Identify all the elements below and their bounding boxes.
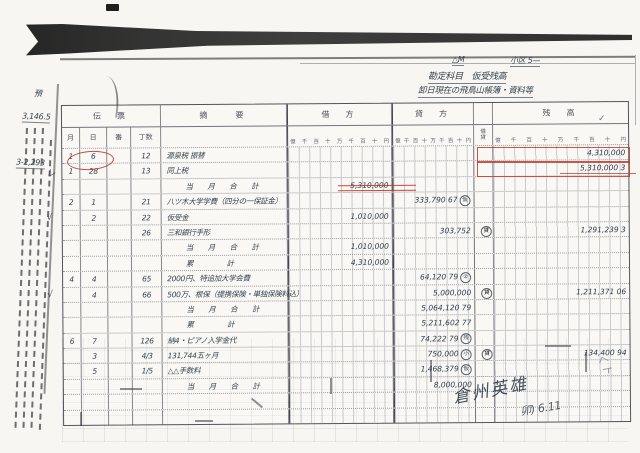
cell-dc-indicator (475, 331, 494, 346)
date-text: 66 (132, 287, 161, 302)
description-text: 源泉税 振替 (161, 147, 286, 163)
cell-balance (494, 207, 629, 222)
cell-credit: 303,752 (393, 223, 475, 238)
cell-date: 1 (81, 195, 108, 210)
cell-date (63, 210, 81, 225)
cell-balance: 1,291,239 3 (494, 222, 629, 237)
cell-date (108, 256, 132, 271)
cell-debit (289, 362, 394, 377)
header-day: 日 (80, 128, 107, 148)
cell-dc-indicator (476, 361, 495, 376)
credit-amount: 5,000,000 (433, 285, 471, 300)
cell-debit: 1,010,000 (288, 239, 393, 254)
cell-date (109, 395, 133, 410)
account-subtitle-line: 卸日現在の飛鳥山帳簿・資料等 (418, 84, 533, 98)
description-text: 当 月 合 計 (161, 178, 286, 194)
cell-credit (393, 238, 475, 253)
date-text: 7 (81, 333, 107, 348)
cell-date (107, 179, 131, 194)
cell-dc-indicator (474, 177, 493, 192)
digit-scale-char: 万 (558, 135, 564, 143)
cell-dc-indicator (475, 192, 494, 207)
cell-date (107, 164, 131, 179)
digit-scale-char: 十 (542, 136, 548, 144)
cell-date: 3 (82, 349, 109, 364)
credit-amount: 333,790 67仮 (415, 192, 471, 207)
cell-description: 当 月 合 計 (162, 301, 288, 316)
digit-scale-char: 十 (605, 135, 611, 143)
description-text: 納4・ピアノ入学金代 (162, 332, 287, 348)
digit-scale-char: 千 (439, 136, 445, 144)
cell-date (80, 179, 107, 194)
date-text: 1 (81, 195, 107, 210)
credit-amount: 1,468,379仮 (421, 362, 472, 377)
scan-artifact-line (300, 63, 635, 64)
digit-scale-char: 億 (395, 137, 401, 145)
side-note: 預 (34, 88, 42, 99)
cell-date (81, 256, 108, 271)
cell-credit (392, 161, 474, 176)
header-slip-no: 番 (107, 127, 131, 147)
cell-balance (493, 176, 628, 191)
cell-date (108, 333, 132, 348)
digit-scale-char: 百 (526, 136, 532, 144)
cell-credit: 333,790 67仮 (393, 192, 475, 207)
cell-debit (289, 378, 394, 393)
cell-date (131, 179, 161, 194)
cell-date: 126 (132, 333, 162, 348)
credit-amount: 750,000小 (428, 346, 472, 361)
date-text: 6 (63, 334, 80, 349)
cell-date (64, 410, 82, 425)
dc-circled-mark: 貸 (482, 349, 493, 360)
red-double-underline-annotation (338, 185, 416, 192)
cell-credit (393, 254, 475, 269)
cell-dc-indicator (475, 269, 494, 284)
cell-credit: 5,000,000 (393, 285, 475, 300)
cell-date (82, 410, 109, 425)
digit-scale-char: 十 (325, 137, 331, 145)
cell-description: 2000円、特追加大学会費 (162, 271, 288, 286)
date-text: 4 (63, 272, 80, 287)
cell-description (163, 394, 289, 409)
date-text: 26 (132, 225, 161, 240)
cell-date (109, 410, 133, 425)
date-text: 2 (63, 195, 80, 210)
cell-debit (288, 193, 393, 208)
date-text: 4 (81, 287, 107, 302)
description-text: 累 計 (162, 255, 287, 271)
cell-date: 6 (63, 334, 81, 349)
cell-credit: 750,000小 (394, 346, 476, 361)
credit-amount: 64,120 79② (420, 269, 471, 284)
cell-date (132, 256, 162, 271)
cell-date (109, 364, 133, 379)
digit-scale-char: 万 (430, 136, 436, 144)
cell-description: 八ツ木大学学費（四分の一保証金） (162, 194, 288, 209)
cell-description: 131,744五ヶ月 (163, 347, 289, 362)
description-text: 131,744五ヶ月 (163, 347, 288, 363)
check-mark: レ (46, 166, 55, 179)
cell-description: 三和銀行手形 (162, 224, 288, 239)
cell-debit (287, 162, 392, 177)
cell-date (64, 380, 82, 395)
credit-amount: 303,752 (440, 223, 471, 238)
digit-scale-char: 百 (413, 136, 419, 144)
cell-date (63, 241, 81, 256)
cell-debit (288, 224, 393, 239)
dc-circled-mark: 貸 (481, 226, 492, 237)
credit-amount: 5,211,602 77 (421, 315, 471, 330)
cell-date (108, 210, 132, 225)
header-page-no: 丁数 (131, 127, 161, 147)
cell-credit (393, 208, 475, 223)
cell-description: △△手数料 (163, 363, 289, 378)
cell-date: 12 (131, 148, 161, 163)
cell-date (81, 303, 108, 318)
cell-date (63, 318, 81, 333)
cell-dc-indicator: 貸 (475, 223, 494, 238)
cell-date: 4 (81, 272, 108, 287)
cell-date: 4/3 (133, 348, 163, 363)
description-text: 三和銀行手形 (162, 224, 287, 240)
cell-date (63, 287, 81, 302)
side-number-1: 3,146.5 (22, 112, 51, 124)
check-mark: √ (47, 290, 53, 300)
cell-dc-indicator: 貸 (475, 284, 494, 299)
credit-amount: 74,222 79残 (420, 331, 471, 346)
cell-debit (287, 147, 392, 162)
cell-date (108, 287, 132, 302)
cell-description: 500万、根保（提携保険・単独保険料込） (162, 286, 288, 301)
digit-scale-char: 億 (495, 136, 501, 144)
header-description: 摘 要 (161, 104, 287, 126)
cell-date (81, 318, 108, 333)
date-text: 3 (82, 349, 108, 364)
cell-balance (494, 299, 629, 314)
cell-date (132, 241, 162, 256)
debit-amount: 4,310,000 (351, 254, 389, 269)
cell-date (108, 195, 132, 210)
cell-balance (494, 314, 629, 329)
cell-date (63, 226, 81, 241)
cell-description: 源泉税 振替 (161, 147, 287, 162)
cell-debit (288, 285, 393, 300)
cell-date (109, 379, 133, 394)
date-text: 13 (131, 164, 160, 179)
cell-date (109, 349, 133, 364)
cell-description: 当 月 合 計 (161, 178, 287, 193)
header-dc: 借 貸 (474, 125, 493, 145)
cell-credit: 1,468,379仮 (394, 362, 476, 377)
cell-dc-indicator (475, 300, 494, 315)
cell-debit (288, 301, 393, 316)
description-text: 仮受金 (162, 209, 287, 225)
cell-date: 65 (132, 271, 162, 286)
cell-date (62, 180, 80, 195)
digit-scale-char: 十 (372, 137, 378, 145)
header-dc-spacer (474, 103, 493, 124)
cell-date (64, 395, 82, 410)
date-text: 65 (132, 271, 161, 286)
scan-artifact-speck (106, 4, 119, 11)
credit-digit-scale: 億千百十万千百十円 (392, 125, 474, 146)
cell-dc-indicator (475, 238, 494, 253)
page-ref-right-text: 小区 5— (510, 56, 540, 67)
description-text: 2000円、特追加大学会費 (162, 271, 287, 287)
cell-date (63, 257, 81, 272)
digit-scale-char: 百 (360, 137, 366, 145)
digit-scale-char: 万 (337, 137, 343, 145)
cell-description: 同上税 (161, 163, 287, 178)
paper-edge-line (635, 55, 636, 125)
digit-scale-char: 億 (290, 137, 296, 145)
circled-mark: 仮 (460, 195, 471, 206)
digit-scale-char: 百 (313, 137, 319, 145)
digit-scale-char: 百 (589, 135, 595, 143)
cell-date (133, 379, 163, 394)
circled-mark: 仮 (461, 364, 472, 375)
cell-debit (288, 331, 393, 346)
description-text: 八ツ木大学学費（四分の一保証金） (162, 194, 287, 210)
credit-amount: 5,064,120 79 (421, 300, 471, 315)
cell-debit (289, 408, 394, 423)
header-description-blank (161, 126, 287, 147)
description-text: △△手数料 (163, 363, 288, 379)
cell-credit: 5,211,602 77 (393, 315, 475, 330)
scanned-ledger-page: △M 小区 5— 勘定科目 仮受残高 卸日現在の飛鳥山帳簿・資料等 預 3,14… (0, 0, 640, 453)
header-credit: 貸 方 (392, 103, 474, 125)
description-text (163, 409, 288, 410)
digit-scale-char: 十 (422, 136, 428, 144)
cell-date: 5 (82, 364, 109, 379)
cell-date: 66 (132, 287, 162, 302)
header-month: 月 (62, 128, 80, 148)
cell-date (81, 226, 108, 241)
cell-date (108, 318, 132, 333)
cell-date: 7 (81, 333, 108, 348)
cell-date: 1/5 (133, 364, 163, 379)
cell-date: 4 (81, 287, 108, 302)
cell-date: 26 (132, 225, 162, 240)
date-text: 21 (132, 194, 161, 209)
digit-scale-char: 千 (348, 137, 354, 145)
circled-mark: ② (460, 272, 471, 283)
header-balance: 残 高 (493, 102, 628, 124)
cell-dc-indicator (476, 408, 495, 423)
digit-scale-char: 円 (383, 137, 389, 145)
debit-amount: 1,010,000 (351, 239, 389, 254)
cell-date: 2 (63, 195, 81, 210)
cell-date: 21 (132, 194, 162, 209)
cell-balance (495, 407, 630, 422)
cell-date (81, 241, 108, 256)
header-voucher: 伝 票 (62, 105, 161, 127)
date-text: 2 (81, 210, 107, 225)
cell-credit: 5,064,120 79 (393, 300, 475, 315)
digit-scale-char: 十 (457, 136, 463, 144)
description-text: 当 月 合 計 (163, 378, 288, 394)
cell-date (108, 241, 132, 256)
page-ref-left: △M (452, 55, 464, 64)
balance-amount: 1,211,371 06 (576, 284, 626, 299)
date-text: 4/3 (133, 348, 162, 363)
cell-description: 納4・ピアノ入学金代 (162, 332, 288, 347)
digit-scale-char: 百 (448, 136, 454, 144)
cell-debit (289, 347, 394, 362)
description-text (163, 394, 288, 395)
scan-artifact-dark-band (26, 24, 632, 56)
cell-debit: 4,310,000 (288, 254, 393, 269)
cell-date (132, 302, 162, 317)
description-text: 同上税 (161, 163, 286, 179)
cell-debit (288, 270, 393, 285)
cell-credit (394, 408, 476, 423)
cell-balance (494, 268, 629, 283)
cell-dc-indicator (475, 315, 494, 330)
page-ref-right: 小区 5— (510, 55, 540, 66)
page-ref-left-text: △M (452, 55, 464, 66)
ledger-header-top: 伝 票 摘 要 借 方 貸 方 残 高 (62, 102, 628, 127)
cell-description: 累 計 (162, 255, 288, 270)
digit-scale-char: 千 (302, 137, 308, 145)
cell-date (108, 225, 132, 240)
cell-balance: 1,211,371 06 (494, 284, 629, 299)
cell-description: 当 月 合 計 (162, 240, 288, 255)
cell-date (64, 349, 82, 364)
date-text: 126 (132, 333, 161, 348)
circled-mark: 小 (461, 349, 472, 360)
check-mark: √ (47, 213, 53, 223)
red-line-annotation (560, 173, 636, 174)
cell-date (108, 272, 132, 287)
cell-date (82, 395, 109, 410)
cell-date (82, 380, 109, 395)
cell-debit (288, 316, 393, 331)
side-number-2: 3-2,293 (16, 158, 45, 170)
digit-scale-char: 千 (573, 135, 579, 143)
date-text: 12 (131, 148, 160, 163)
cell-description: 累 計 (162, 317, 288, 332)
date-text: 4 (81, 272, 107, 287)
circled-mark: 残 (460, 333, 471, 344)
balance-amount: 1,291,239 3 (580, 222, 625, 237)
cell-date (132, 318, 162, 333)
description-text: 当 月 合 計 (162, 301, 287, 317)
description-text: 当 月 合 計 (162, 240, 287, 256)
cell-description: 当 月 合 計 (163, 378, 289, 393)
cell-balance (494, 237, 629, 252)
cell-date (108, 302, 132, 317)
cell-date: 4 (63, 272, 81, 287)
cell-balance (494, 253, 629, 268)
date-text: 22 (132, 210, 161, 225)
header-dc-bottom: 貸 (480, 135, 486, 141)
cell-date: 2 (81, 210, 108, 225)
cell-date: 22 (132, 210, 162, 225)
header-debit: 借 方 (287, 104, 392, 126)
cell-description: 仮受金 (162, 209, 288, 224)
cell-balance (494, 330, 629, 345)
cell-debit (289, 393, 394, 408)
digit-scale-char: 千 (404, 137, 410, 145)
balance-digit-scale: 億千百十万千百十円 (493, 124, 628, 145)
scan-artifact-line (60, 56, 635, 61)
cell-dc-indicator: 貸 (476, 346, 495, 361)
red-box-annotation (477, 161, 630, 177)
cell-dc-indicator (475, 254, 494, 269)
cell-credit: 74,222 79残 (393, 331, 475, 346)
cell-description (163, 409, 289, 424)
cell-debit: 1,010,000 (288, 208, 393, 223)
cell-date: 13 (131, 164, 161, 179)
debit-amount: 1,010,000 (350, 208, 388, 223)
cell-date (63, 303, 81, 318)
digit-scale-char: 円 (620, 135, 626, 143)
digit-scale-char: 円 (465, 136, 471, 144)
description-text: 累 計 (162, 317, 287, 333)
cell-date (133, 395, 163, 410)
date-text: 5 (82, 364, 108, 379)
cell-dc-indicator (475, 208, 494, 223)
cell-date (133, 410, 163, 425)
date-text: 1/5 (133, 364, 162, 379)
cell-credit (392, 146, 474, 161)
debit-digit-scale: 億千百十万千百十円 (287, 126, 392, 147)
cell-balance (494, 191, 629, 206)
description-text: 500万、根保（提携保険・単独保険料込） (162, 286, 287, 302)
cell-date (64, 364, 82, 379)
cell-credit: 64,120 79② (393, 269, 475, 284)
digit-scale-char: 千 (511, 136, 517, 144)
account-title-line: 勘定科目 仮受残高 (428, 69, 506, 84)
dc-circled-mark: 貸 (481, 287, 492, 298)
